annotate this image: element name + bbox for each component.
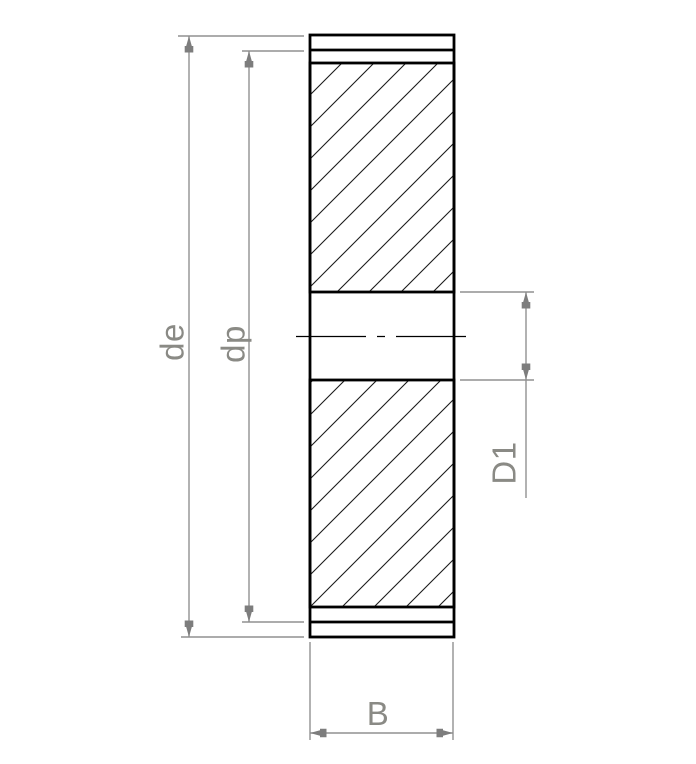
b-arrow-left-icon	[310, 729, 327, 738]
de-arrow-down-icon	[185, 621, 194, 638]
gear-section-drawing: de dp D1 B	[0, 0, 696, 764]
dimension-bore-diameter: D1	[460, 292, 534, 498]
dimension-face-width: B	[310, 642, 453, 740]
lower-hatched-section	[310, 380, 454, 607]
dp-label: dp	[215, 325, 252, 363]
d1-arrow-up-icon	[522, 292, 531, 309]
technical-drawing-page: de dp D1 B	[0, 0, 696, 764]
d1-arrow-down-icon	[522, 364, 531, 381]
upper-hatched-section	[310, 63, 454, 292]
dimension-pitch-diameter: dp	[215, 51, 305, 622]
d1-label: D1	[486, 441, 523, 484]
b-label: B	[367, 695, 390, 732]
dp-arrow-down-icon	[245, 606, 254, 623]
de-arrow-up-icon	[185, 36, 194, 53]
gear-body	[296, 35, 468, 637]
b-arrow-right-icon	[437, 729, 454, 738]
dp-arrow-up-icon	[245, 51, 254, 68]
de-label: de	[154, 323, 191, 361]
